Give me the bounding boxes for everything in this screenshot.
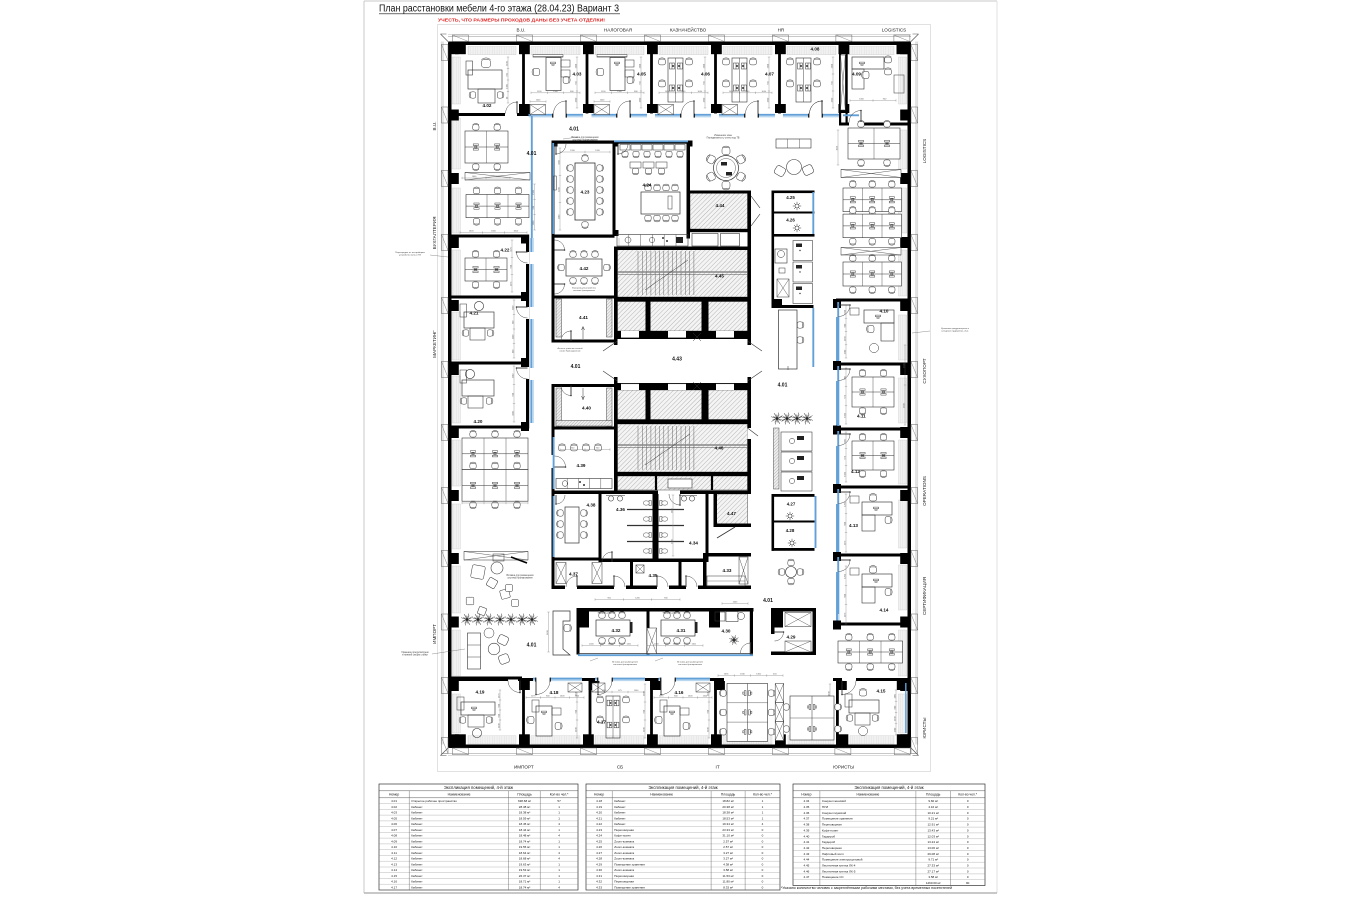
svg-text:в нижней секции стойки: в нижней секции стойки — [402, 654, 428, 657]
svg-text:4.09: 4.09 — [391, 839, 397, 843]
svg-text:Кабинет: Кабинет — [614, 822, 626, 826]
svg-text:СЕРТИФИКАЦИЯ: СЕРТИФИКАЦИЯ — [922, 577, 927, 615]
svg-text:Экспликация помещений, 4-й эта: Экспликация помещений, 4-й этаж — [648, 785, 717, 790]
svg-text:4.46: 4.46 — [715, 446, 724, 451]
svg-text:8.33 м²: 8.33 м² — [723, 886, 733, 890]
svg-text:4.46: 4.46 — [803, 869, 809, 873]
svg-text:26.37 м²: 26.37 м² — [519, 874, 530, 878]
svg-text:4.25: 4.25 — [786, 195, 795, 200]
svg-text:Номер: Номер — [389, 793, 399, 797]
svg-text:11.53 м²: 11.53 м² — [723, 874, 734, 878]
svg-text:Переговорная: Переговорная — [822, 823, 842, 827]
svg-text:Кабинет: Кабинет — [411, 845, 423, 849]
svg-text:4.01: 4.01 — [778, 383, 788, 389]
svg-text:4.11: 4.11 — [857, 414, 866, 419]
svg-text:Помещение хранения: Помещение хранения — [822, 817, 853, 821]
svg-text:IT: IT — [716, 765, 720, 770]
svg-text:LOGISTICS: LOGISTICS — [882, 28, 907, 33]
svg-text:4.35: 4.35 — [803, 805, 809, 809]
svg-text:4.08: 4.08 — [391, 834, 397, 838]
svg-text:27.33 м²: 27.33 м² — [927, 864, 938, 868]
svg-text:4.27: 4.27 — [596, 851, 602, 855]
svg-text:4.31: 4.31 — [677, 628, 686, 633]
svg-text:18.45 м²: 18.45 м² — [519, 822, 530, 826]
svg-text:4.45: 4.45 — [715, 274, 724, 279]
svg-text:4.01: 4.01 — [527, 643, 537, 649]
svg-text:системы бронирования: системы бронирования — [613, 664, 638, 666]
svg-text:4.10: 4.10 — [880, 309, 889, 314]
svg-text:Лестничная клетка ЛК-5: Лестничная клетка ЛК-5 — [822, 869, 856, 873]
svg-text:4.18: 4.18 — [596, 799, 602, 803]
svg-text:4.32: 4.32 — [596, 880, 602, 884]
svg-text:4.45: 4.45 — [803, 864, 809, 868]
svg-text:устройство окна и ТВ: устройство окна и ТВ — [399, 254, 421, 257]
svg-text:4.20: 4.20 — [596, 811, 602, 815]
svg-text:31.10 м²: 31.10 м² — [722, 834, 733, 838]
svg-text:B.U.: B.U. — [517, 28, 526, 33]
svg-text:Номер: Номер — [594, 793, 604, 797]
svg-text:4.08: 4.08 — [811, 47, 820, 52]
svg-text:57: 57 — [557, 799, 561, 803]
svg-text:638.68 м²: 638.68 м² — [518, 799, 531, 803]
svg-text:Кол-во чел.*: Кол-во чел.* — [550, 793, 569, 797]
svg-text:План расстановки мебели 4-го э: План расстановки мебели 4-го этажа (28.0… — [379, 3, 619, 15]
svg-text:20.38 м²: 20.38 м² — [722, 805, 733, 809]
svg-text:Наименование: Наименование — [448, 793, 471, 797]
svg-text:12.03 м²: 12.03 м² — [927, 834, 938, 838]
svg-text:18.53 м²: 18.53 м² — [722, 816, 733, 820]
svg-text:Экспликация помещений, 4-й эта: Экспликация помещений, 4-й этаж — [444, 785, 513, 790]
svg-text:Форсунки для устр.: Форсунки для устр. — [598, 612, 615, 615]
svg-text:Кабинет: Кабинет — [411, 822, 423, 826]
svg-text:УЧЕСТЬ, ЧТО РАЗМЕРЫ ПРОХОДОВ Д: УЧЕСТЬ, ЧТО РАЗМЕРЫ ПРОХОДОВ ДАНЫ БЕЗ УЧ… — [438, 17, 605, 23]
svg-text:28.38 м²: 28.38 м² — [519, 805, 530, 809]
svg-text:ПУИ: ПУИ — [822, 805, 828, 809]
svg-text:Кабинет: Кабинет — [411, 828, 423, 832]
svg-text:4.23: 4.23 — [596, 828, 602, 832]
svg-text:4.19: 4.19 — [596, 805, 602, 809]
svg-text:4.11: 4.11 — [391, 851, 397, 855]
svg-text:4.30: 4.30 — [596, 868, 602, 872]
svg-text:Кабинет: Кабинет — [614, 816, 626, 820]
svg-text:Кабинет: Кабинет — [411, 886, 423, 890]
svg-text:4.36: 4.36 — [616, 507, 625, 512]
svg-text:19.53 м²: 19.53 м² — [519, 868, 530, 872]
svg-text:Кабинет: Кабинет — [411, 868, 423, 872]
svg-text:Кабинет: Кабинет — [411, 805, 423, 809]
svg-text:13.24 м²: 13.24 м² — [927, 840, 938, 844]
svg-text:Площадь: Площадь — [926, 793, 941, 797]
svg-text:4.13: 4.13 — [391, 863, 397, 867]
svg-text:2.57 м²: 2.57 м² — [723, 845, 733, 849]
svg-text:4.34: 4.34 — [689, 541, 698, 546]
svg-text:4.23: 4.23 — [581, 190, 590, 195]
svg-text:ЮРИСТЫ: ЮРИСТЫ — [922, 717, 927, 738]
svg-text:Кофе-поинт: Кофе-поинт — [822, 828, 839, 832]
svg-text:4.19: 4.19 — [476, 690, 485, 695]
svg-text:Zoom-комната: Zoom-комната — [614, 868, 634, 872]
svg-text:3.58 м²: 3.58 м² — [928, 875, 938, 879]
svg-text:ИМПОРТ: ИМПОРТ — [432, 624, 437, 644]
svg-text:Лестничная клетка ЛК-4: Лестничная клетка ЛК-4 — [822, 864, 856, 868]
svg-text:4.39: 4.39 — [577, 463, 586, 468]
svg-text:4.13: 4.13 — [849, 523, 858, 528]
svg-text:Кабинет: Кабинет — [411, 816, 423, 820]
svg-text:18.59 м²: 18.59 м² — [519, 816, 530, 820]
svg-text:4.27: 4.27 — [787, 502, 796, 507]
svg-text:4.01: 4.01 — [391, 799, 397, 803]
svg-text:Номер: Номер — [801, 793, 811, 797]
svg-text:4.20: 4.20 — [474, 419, 483, 424]
svg-text:системы бронирования: системы бронирования — [678, 664, 703, 666]
svg-text:4.42: 4.42 — [803, 846, 809, 850]
svg-text:4.03: 4.03 — [391, 811, 397, 815]
svg-text:Zoom-комната: Zoom-комната — [614, 851, 634, 855]
svg-text:18.44 м²: 18.44 м² — [519, 828, 530, 832]
svg-text:Кабинет: Кабинет — [411, 874, 423, 878]
svg-text:Лифтовый холл: Лифтовый холл — [822, 852, 844, 856]
svg-text:4.21: 4.21 — [470, 311, 479, 316]
svg-text:Передвигается у стены под ТВ: Передвигается у стены под ТВ — [707, 138, 740, 140]
svg-text:4.09: 4.09 — [852, 72, 861, 77]
svg-text:4.22: 4.22 — [501, 248, 510, 253]
svg-text:4.39: 4.39 — [803, 828, 809, 832]
svg-text:19.55 м²: 19.55 м² — [519, 845, 530, 849]
svg-text:системы бронирования: системы бронирования — [573, 290, 595, 292]
svg-text:4.40: 4.40 — [803, 834, 809, 838]
svg-text:*Указано количество человек с: *Указано количество человек с закреплённ… — [781, 886, 952, 890]
svg-text:13.06 м²: 13.06 м² — [927, 846, 938, 850]
svg-text:4.43: 4.43 — [803, 852, 809, 856]
svg-text:Открытое рабочее пространство: Открытое рабочее пространство — [411, 799, 457, 803]
svg-text:4.38: 4.38 — [803, 823, 809, 827]
svg-text:13.43 м²: 13.43 м² — [927, 828, 938, 832]
svg-text:4.28: 4.28 — [596, 857, 602, 861]
svg-text:4.32: 4.32 — [612, 628, 621, 633]
svg-text:4.17: 4.17 — [597, 720, 606, 725]
svg-text:Zoom-комната: Zoom-комната — [614, 845, 634, 849]
svg-text:Изменение зоны: Изменение зоны — [714, 135, 732, 137]
svg-text:9.21 м²: 9.21 м² — [928, 817, 938, 821]
svg-text:Помещение хранения: Помещение хранения — [614, 863, 645, 867]
svg-text:Вставка для размещения: Вставка для размещения — [506, 575, 534, 577]
svg-text:системы бронирования: системы бронирования — [573, 140, 599, 142]
svg-text:Zoom-комната: Zoom-комната — [614, 857, 634, 861]
svg-text:23.33 м²: 23.33 м² — [722, 828, 733, 832]
svg-text:4.02: 4.02 — [391, 805, 397, 809]
svg-text:4.41: 4.41 — [579, 315, 588, 320]
svg-text:КАЗНАЧЕЙСТВО: КАЗНАЧЕЙСТВО — [670, 26, 707, 33]
svg-text:4.15: 4.15 — [877, 689, 886, 694]
svg-text:4.31: 4.31 — [596, 874, 602, 878]
svg-text:ЮРИСТЫ: ЮРИСТЫ — [833, 765, 854, 770]
svg-text:4.44: 4.44 — [803, 858, 809, 862]
svg-text:Кабинет: Кабинет — [614, 799, 626, 803]
svg-text:Санузел мужской: Санузел мужской — [822, 811, 847, 815]
svg-text:Хранение предусмотрено: Хранение предусмотрено — [401, 652, 429, 654]
svg-text:4.01: 4.01 — [763, 598, 773, 604]
svg-text:4.15: 4.15 — [391, 874, 397, 878]
svg-text:4.10: 4.10 — [391, 845, 397, 849]
svg-text:БУХГАЛТЕРИЯ: БУХГАЛТЕРИЯ — [432, 217, 437, 250]
svg-text:4.42: 4.42 — [580, 266, 589, 271]
svg-text:Переговорная: Переговорная — [614, 880, 634, 884]
svg-text:складных гардеробах, 2шт.: складных гардеробах, 2шт. — [941, 331, 969, 333]
svg-text:Переговорная: Переговорная — [614, 874, 634, 878]
svg-text:Гардероб: Гардероб — [822, 840, 835, 844]
svg-text:4.36: 4.36 — [803, 811, 809, 815]
svg-text:Перегородка от застройщика: Перегородка от застройщика — [395, 251, 425, 254]
svg-text:4.17: 4.17 — [391, 886, 397, 890]
svg-text:4.26: 4.26 — [786, 218, 795, 223]
svg-text:НАЛОГОВАЯ: НАЛОГОВАЯ — [604, 28, 632, 33]
svg-text:Форсунки для устр.: Форсунки для устр. — [663, 612, 680, 615]
svg-text:12.91 м²: 12.91 м² — [927, 823, 938, 827]
svg-text:Кабинет: Кабинет — [614, 811, 626, 815]
svg-text:СБ: СБ — [617, 765, 623, 770]
svg-text:4.41: 4.41 — [803, 840, 809, 844]
svg-text:4.26: 4.26 — [596, 845, 602, 849]
svg-text:OPERATIONS: OPERATIONS — [922, 476, 927, 506]
svg-text:4.16: 4.16 — [675, 690, 684, 695]
svg-text:Кабинет: Кабинет — [614, 805, 626, 809]
svg-text:Санузел женский: Санузел женский — [822, 799, 846, 803]
svg-text:11.80 м²: 11.80 м² — [723, 880, 734, 884]
svg-text:Площадь: Площадь — [721, 793, 736, 797]
svg-text:4.24: 4.24 — [596, 834, 602, 838]
svg-text:4.12: 4.12 — [391, 857, 397, 861]
svg-text:4.18: 4.18 — [550, 690, 559, 695]
svg-text:4.01: 4.01 — [569, 127, 579, 133]
svg-text:Наименование: Наименование — [856, 793, 879, 797]
svg-text:Переговорная: Переговорная — [822, 846, 842, 850]
svg-text:9.71 м²: 9.71 м² — [928, 858, 938, 862]
svg-text:4.16: 4.16 — [391, 880, 397, 884]
svg-text:Кабинет: Кабинет — [411, 811, 423, 815]
svg-text:27.17 м²: 27.17 м² — [927, 869, 938, 873]
svg-text:4.14: 4.14 — [391, 868, 397, 872]
svg-text:19.34 м²: 19.34 м² — [722, 822, 733, 826]
svg-text:LOGISTICS: LOGISTICS — [922, 139, 927, 164]
svg-text:3.27 м²: 3.27 м² — [723, 851, 733, 855]
svg-text:Кофе-поинт: Кофе-поинт — [614, 834, 631, 838]
svg-text:Кабинет: Кабинет — [411, 857, 423, 861]
svg-text:4.38 м²: 4.38 м² — [723, 863, 733, 867]
svg-text:3.58 м²: 3.58 м² — [723, 868, 733, 872]
svg-text:1260.00 м²: 1260.00 м² — [926, 881, 941, 885]
svg-text:Кабинет: Кабинет — [411, 834, 423, 838]
svg-text:4.40: 4.40 — [582, 406, 591, 411]
svg-text:4.29: 4.29 — [596, 863, 602, 867]
svg-text:4.33: 4.33 — [596, 886, 602, 890]
svg-text:4.06: 4.06 — [391, 822, 397, 826]
svg-text:18.38 м²: 18.38 м² — [722, 811, 733, 815]
svg-text:4.22: 4.22 — [596, 822, 602, 826]
svg-text:18.74 м²: 18.74 м² — [519, 886, 530, 890]
svg-text:4.12: 4.12 — [851, 469, 860, 474]
svg-text:4.01: 4.01 — [571, 364, 581, 370]
svg-text:Кабинет: Кабинет — [411, 839, 423, 843]
svg-text:Кабинет: Кабинет — [411, 880, 423, 884]
svg-text:4.16 м²: 4.16 м² — [928, 805, 938, 809]
svg-text:18.48 м²: 18.48 м² — [519, 834, 530, 838]
svg-text:29.08 м²: 29.08 м² — [927, 852, 938, 856]
svg-text:4.44: 4.44 — [716, 203, 725, 208]
svg-text:9.60 м²: 9.60 м² — [928, 799, 938, 803]
svg-text:18.38 м²: 18.38 м² — [519, 811, 530, 815]
svg-text:4.28: 4.28 — [786, 528, 795, 533]
svg-text:Площадь: Площадь — [517, 793, 532, 797]
svg-text:системы бронирования: системы бронирования — [508, 578, 534, 580]
svg-text:3.27 м²: 3.27 м² — [723, 857, 733, 861]
svg-text:Помещение СС: Помещение СС — [822, 875, 845, 879]
svg-text:90: 90 — [966, 881, 970, 885]
svg-text:19.63 м²: 19.63 м² — [519, 863, 530, 867]
svg-text:Наименование: Наименование — [650, 793, 673, 797]
svg-text:связи. Присоединение: связи. Присоединение — [560, 350, 582, 352]
svg-text:18.64 м²: 18.64 м² — [519, 851, 530, 855]
svg-text:18.82 м²: 18.82 м² — [722, 799, 733, 803]
svg-text:4.37: 4.37 — [803, 817, 809, 821]
svg-text:4.29: 4.29 — [787, 635, 796, 640]
svg-text:4.05: 4.05 — [391, 816, 397, 820]
svg-text:4.07: 4.07 — [391, 828, 397, 832]
svg-text:Кол-во чел.*: Кол-во чел.* — [958, 793, 977, 797]
svg-text:18.74 м²: 18.74 м² — [519, 839, 530, 843]
svg-text:4.14: 4.14 — [880, 608, 889, 613]
svg-text:Помещение электрощитовой: Помещение электрощитовой — [822, 858, 863, 862]
svg-text:HR: HR — [778, 28, 785, 33]
svg-text:18.68 м²: 18.68 м² — [519, 857, 530, 861]
svg-text:B.U.: B.U. — [432, 122, 437, 131]
svg-text:4.33: 4.33 — [723, 568, 732, 573]
svg-text:МАРКЕТИНГ: МАРКЕТИНГ — [432, 330, 437, 358]
svg-text:4.47: 4.47 — [727, 511, 736, 516]
svg-text:18.71 м²: 18.71 м² — [519, 880, 530, 884]
svg-text:4.43: 4.43 — [672, 357, 682, 363]
svg-text:10.21 м²: 10.21 м² — [927, 811, 938, 815]
svg-text:СУХОПОРТ: СУХОПОРТ — [922, 358, 927, 383]
svg-text:Экспликация помещений, 4-й эта: Экспликация помещений, 4-й этаж — [854, 785, 923, 790]
svg-text:Кабинет: Кабинет — [411, 851, 423, 855]
svg-text:4.34: 4.34 — [803, 799, 809, 803]
svg-text:4.24: 4.24 — [643, 183, 652, 188]
svg-text:Zoom-комната: Zoom-комната — [614, 839, 634, 843]
svg-text:Кабинет: Кабинет — [411, 863, 423, 867]
svg-text:2.57 м²: 2.57 м² — [723, 839, 733, 843]
svg-text:4.38: 4.38 — [587, 503, 596, 508]
svg-text:4.47: 4.47 — [803, 875, 809, 879]
svg-text:4.30: 4.30 — [722, 629, 731, 634]
svg-text:ИМПОРТ: ИМПОРТ — [514, 765, 534, 770]
svg-text:4.21: 4.21 — [596, 816, 602, 820]
svg-text:4.01: 4.01 — [527, 151, 537, 157]
svg-text:Помещение хранения: Помещение хранения — [614, 886, 645, 890]
svg-text:Гардероб: Гардероб — [822, 834, 835, 838]
svg-text:4.02: 4.02 — [483, 103, 492, 108]
svg-text:Кол-во чел.*: Кол-во чел.* — [753, 793, 772, 797]
svg-text:4.25: 4.25 — [596, 839, 602, 843]
svg-text:Переговорная: Переговорная — [614, 828, 634, 832]
